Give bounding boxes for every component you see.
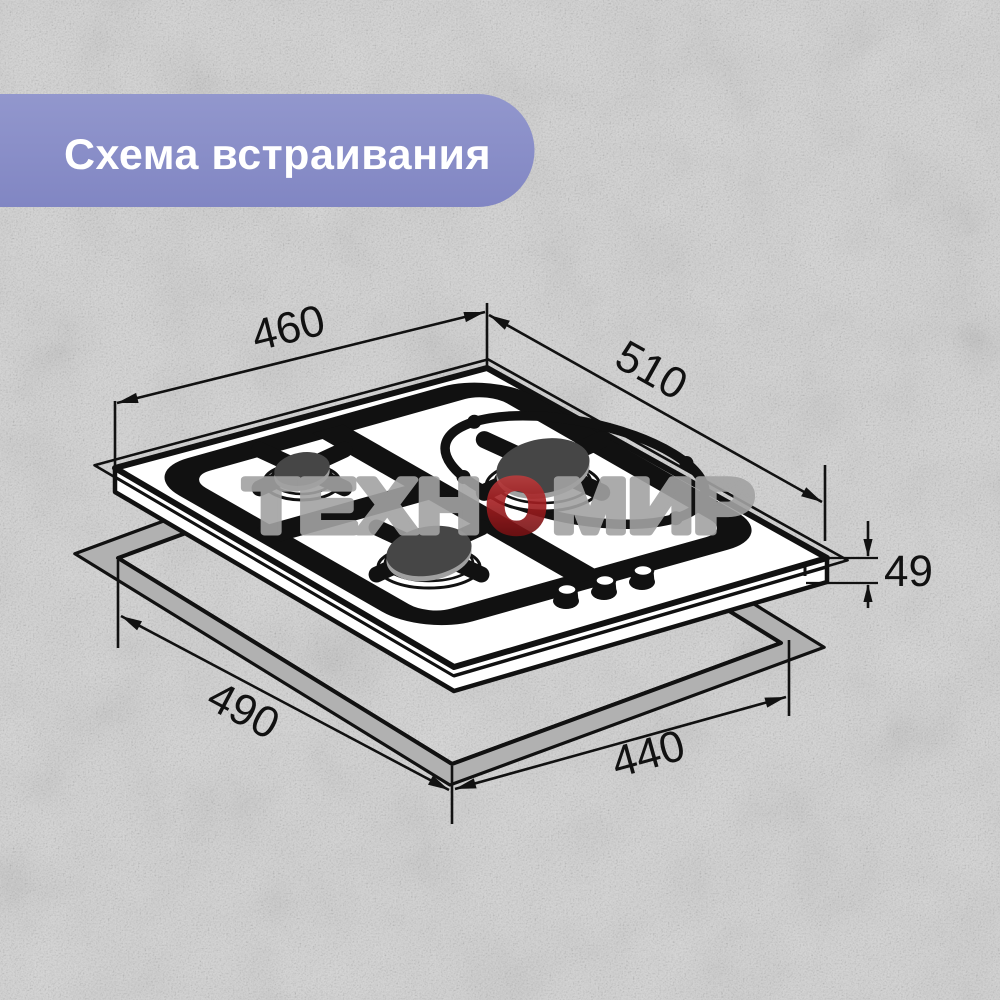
svg-text:Схема встраивания: Схема встраивания (64, 131, 491, 179)
svg-text:МИР: МИР (552, 464, 754, 549)
svg-text:О: О (487, 464, 546, 549)
svg-text:ТЕХН: ТЕХН (244, 464, 481, 549)
svg-text:49: 49 (884, 547, 933, 596)
